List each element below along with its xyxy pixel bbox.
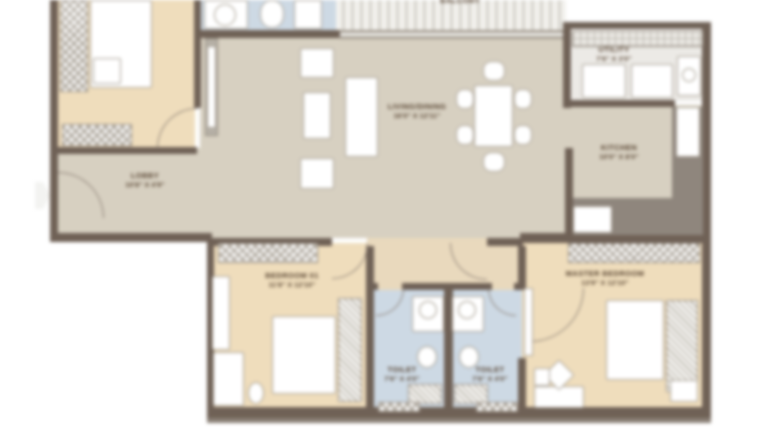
- dining-chair-icon: [514, 125, 532, 145]
- chair-icon: [300, 48, 334, 78]
- wardrobe-icon: [60, 0, 88, 92]
- room-dims: 7'6" X 3'0": [580, 55, 648, 65]
- room-label-toilet1: TOILET 7'6" X 4'0": [376, 364, 428, 385]
- basin-icon: [458, 301, 476, 319]
- shower-icon: [294, 0, 322, 29]
- wall: [518, 246, 526, 288]
- room-name: LOBBY: [95, 170, 195, 181]
- room-label-lobby: LOBBY 10'8" X 4'9": [95, 170, 195, 191]
- room-dims: 11'8" X 12'10": [242, 281, 342, 291]
- floor-plan: LOBBY 10'8" X 4'9" LIVING/DINING 16'0" X…: [0, 0, 768, 427]
- wall: [448, 283, 492, 290]
- window-sill: [340, 33, 568, 36]
- wall: [207, 418, 711, 423]
- seat-icon: [303, 92, 331, 139]
- bed-icon: [606, 300, 664, 380]
- room-name: TOILET: [376, 364, 428, 375]
- master-door-leaf: [524, 288, 533, 356]
- wall: [571, 100, 675, 107]
- wall: [50, 147, 197, 154]
- mirror-unit-icon: [212, 276, 230, 350]
- shower-area-icon: [454, 384, 488, 404]
- basin-icon: [419, 301, 437, 319]
- room-name: MASTER BEDROOM: [546, 268, 664, 279]
- room-name: UTILITY: [580, 44, 648, 55]
- room-label-toilet2: TOILET 7'6" X 4'0": [464, 364, 516, 385]
- room-dims: 13'9" X 12'10": [546, 279, 664, 289]
- sink-bowl-icon: [682, 68, 696, 82]
- window-icon: [62, 124, 132, 146]
- dining-chair-icon: [456, 125, 474, 145]
- room-label-master: MASTER BEDROOM 13'9" X 12'10": [546, 268, 664, 289]
- window-icon: [378, 402, 420, 412]
- kitchen-sink-icon: [676, 107, 700, 157]
- room-name: TOILET: [464, 364, 516, 375]
- shower-area-icon: [408, 384, 442, 404]
- wardrobe-icon: [338, 298, 362, 402]
- sliding-door-panel-inner: [207, 46, 216, 128]
- entrance-arrow-icon: [35, 182, 50, 209]
- wall: [702, 22, 711, 415]
- window-icon: [476, 402, 518, 412]
- wardrobe-icon: [568, 243, 700, 263]
- wardrobe-icon: [218, 243, 318, 263]
- dining-chair-icon: [514, 89, 532, 109]
- room-label-kitchen: KITCHEN 10'0" X 8'0": [578, 142, 660, 163]
- room-dims: 10'8" X 4'9": [95, 181, 195, 191]
- basin-icon: [214, 4, 236, 26]
- wall: [194, 0, 201, 108]
- room-name: BALCONY: [420, 0, 500, 6]
- chair-icon: [300, 158, 334, 189]
- utility-counter-icon: [631, 64, 673, 98]
- fridge-icon: [573, 206, 612, 233]
- wall: [487, 238, 523, 246]
- bed-icon: [272, 316, 336, 394]
- stool-icon: [248, 382, 264, 404]
- dining-chair-icon: [483, 61, 505, 81]
- washer-icon: [582, 64, 626, 98]
- wall: [207, 407, 711, 418]
- wall: [563, 22, 710, 29]
- dresser-icon: [213, 352, 244, 406]
- room-name: BEDROOM 01: [242, 270, 342, 281]
- wall: [563, 22, 571, 108]
- room-label-bedroom01: BEDROOM 01 11'8" X 12'10": [242, 270, 342, 291]
- wall: [565, 148, 573, 238]
- wall: [366, 246, 374, 415]
- room-name: KITCHEN: [578, 142, 660, 153]
- wc-icon: [260, 0, 284, 28]
- room-dims: 7'6" X 4'0": [464, 375, 516, 385]
- wardrobe-icon: [666, 300, 698, 392]
- room-name: LIVING/DINING: [355, 101, 479, 112]
- room-dims: 10'0" X 8'0": [578, 153, 660, 163]
- pillow-icon: [93, 58, 121, 84]
- room-dims: 7'6" X 4'0": [376, 375, 428, 385]
- room-label-utility: UTILITY 7'6" X 3'0": [580, 44, 648, 65]
- wall: [197, 30, 340, 38]
- dining-chair-icon: [483, 152, 505, 172]
- wall: [50, 0, 58, 241]
- wall: [50, 233, 212, 242]
- room-label-living: LIVING/DINING 16'0" X 12'11": [355, 101, 479, 122]
- dresser-icon: [534, 368, 550, 386]
- room-dims: 16'0" X 12'11": [355, 112, 479, 122]
- side-table-icon: [670, 380, 698, 402]
- room-label-balcony: BALCONY: [420, 0, 500, 6]
- dining-table-icon: [474, 85, 513, 147]
